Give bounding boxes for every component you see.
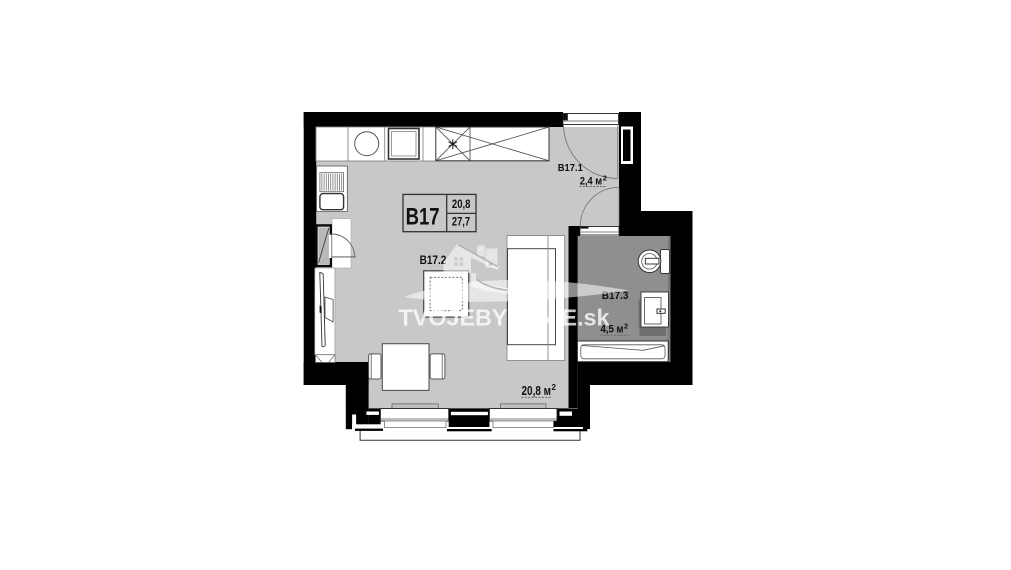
svg-text:2: 2 xyxy=(552,383,557,392)
svg-text:2: 2 xyxy=(624,321,628,330)
svg-text:27,7: 27,7 xyxy=(452,215,470,229)
svg-text:B17: B17 xyxy=(406,204,440,231)
svg-text:2,4 м: 2,4 м xyxy=(580,176,603,188)
svg-text:B17.1: B17.1 xyxy=(558,163,583,174)
svg-text:20,8: 20,8 xyxy=(452,197,471,211)
svg-text:TVOJEBYVANIE.sk: TVOJEBYVANIE.sk xyxy=(399,304,611,330)
svg-text:2: 2 xyxy=(603,173,607,182)
svg-text:B17.2: B17.2 xyxy=(420,253,447,267)
svg-text:20,8 м: 20,8 м xyxy=(522,384,552,398)
